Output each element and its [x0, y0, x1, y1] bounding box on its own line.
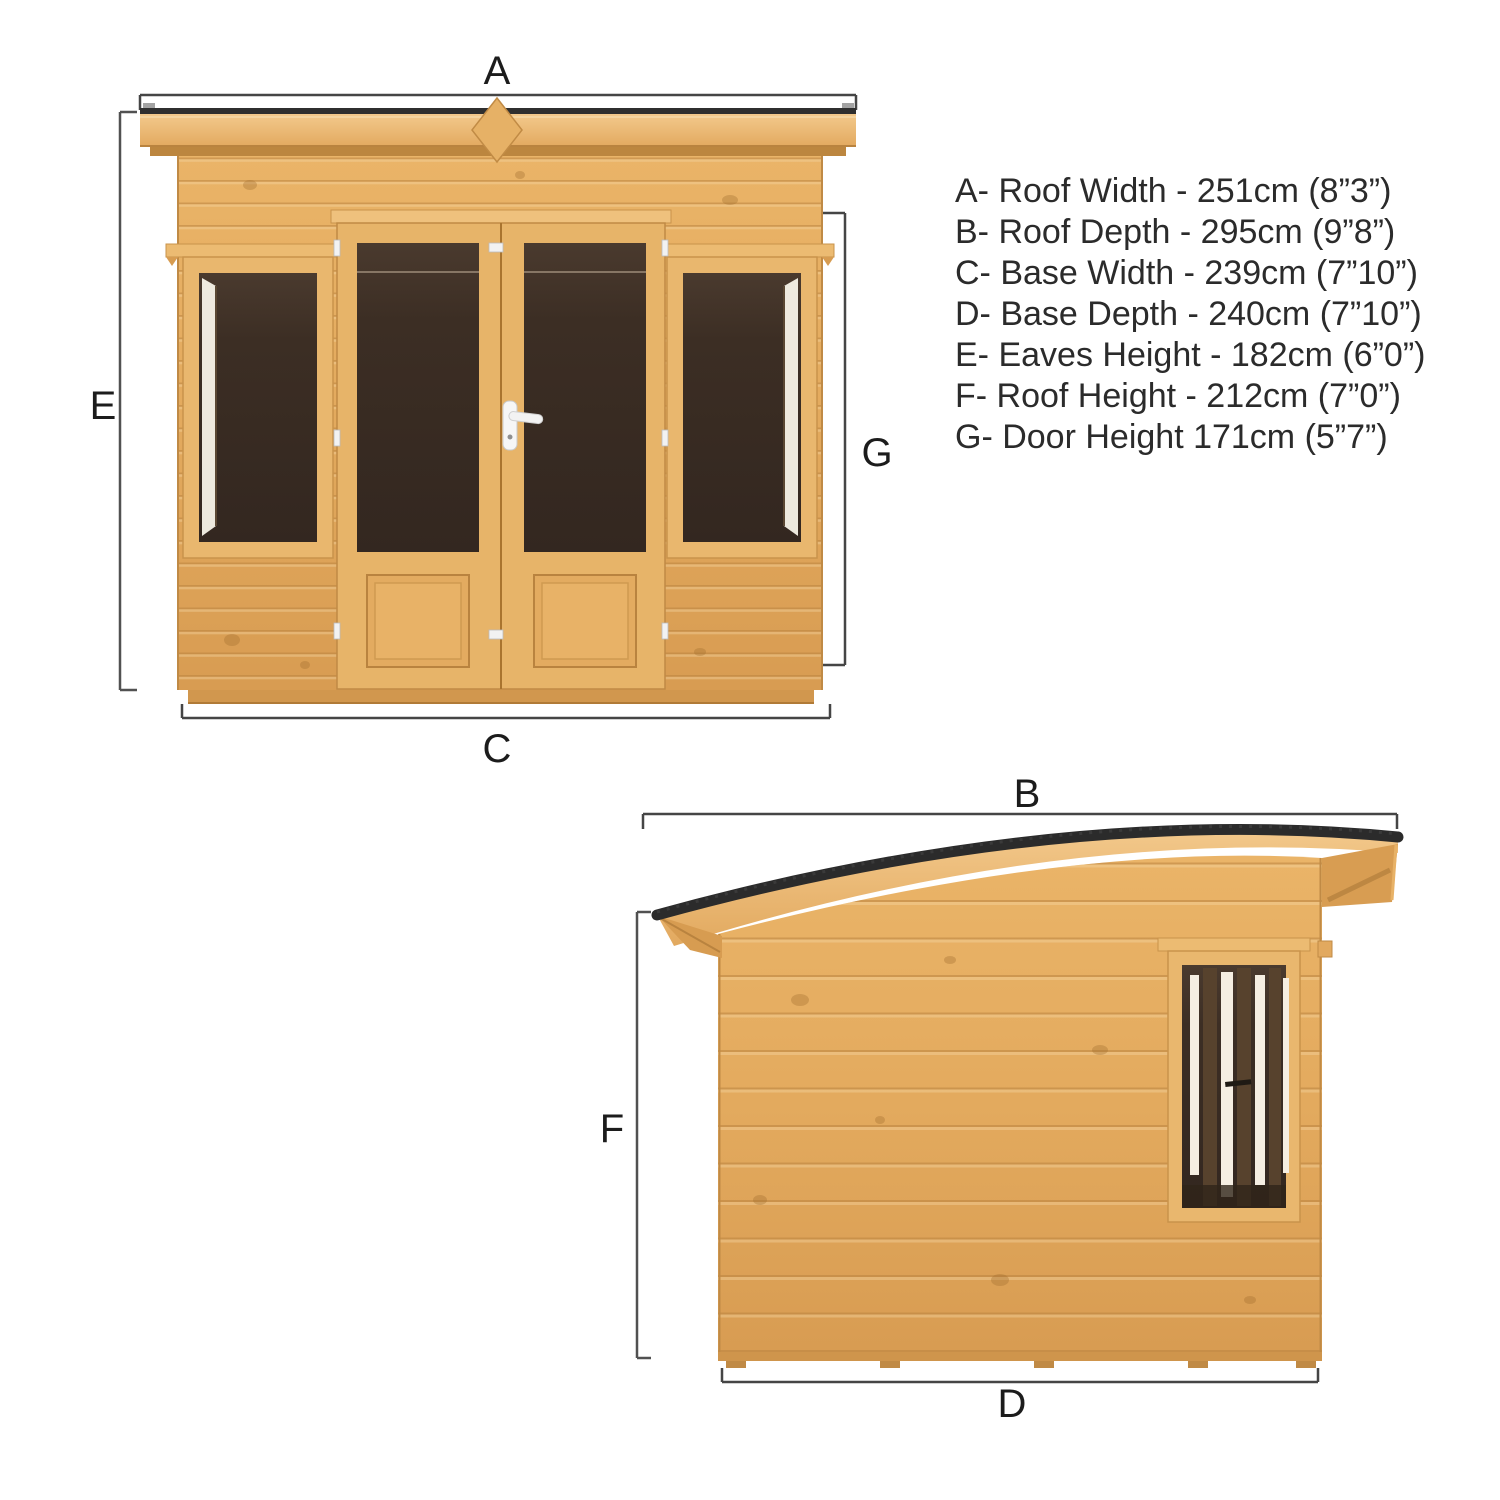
dim-label-e: E [90, 384, 117, 428]
spec-list: A- Roof Width - 251cm (8”3”) B- Roof Dep… [955, 171, 1426, 458]
dimension-diagram: A E G C [0, 0, 1500, 1500]
dim-label-c: C [483, 727, 512, 771]
side-window [1158, 938, 1310, 1222]
left-window [166, 244, 338, 558]
dim-label-g: G [861, 431, 892, 475]
dim-line-base-width [182, 704, 830, 718]
front-view: A E G C [90, 49, 893, 771]
dim-line-roof-height [637, 912, 651, 1358]
dim-line-base-depth [722, 1368, 1318, 1382]
dim-line-eaves-height [120, 112, 137, 690]
left-window-open-casement [202, 278, 216, 536]
door-lintel [331, 210, 671, 223]
right-door-glazing [524, 243, 646, 552]
spec-line-door-height: G- Door Height 171cm (5”7”) [955, 417, 1426, 458]
spec-line-roof-height: F- Roof Height - 212cm (7”0”) [955, 376, 1426, 417]
dim-label-a: A [484, 49, 511, 93]
front-base [188, 690, 814, 703]
dim-label-b: B [1014, 772, 1041, 816]
spec-line-base-width: C- Base Width - 239cm (7”10”) [955, 253, 1426, 294]
side-base [718, 1352, 1322, 1368]
side-view: B F D [600, 772, 1398, 1426]
spec-line-roof-width: A- Roof Width - 251cm (8”3”) [955, 171, 1426, 212]
double-doors [331, 210, 671, 689]
right-window [662, 244, 834, 558]
right-window-open-casement [784, 278, 798, 536]
spec-line-eaves-height: E- Eaves Height - 182cm (6”0”) [955, 335, 1426, 376]
base-bearers [726, 1361, 1316, 1368]
left-door-glazing [357, 243, 479, 552]
interior-glazing-bars [1190, 968, 1289, 1206]
dim-label-f: F [600, 1107, 624, 1151]
dim-label-d: D [998, 1382, 1027, 1426]
spec-line-roof-depth: B- Roof Depth - 295cm (9”8”) [955, 212, 1426, 253]
spec-line-base-depth: D- Base Depth - 240cm (7”10”) [955, 294, 1426, 335]
side-trim-tab [1318, 941, 1332, 957]
front-roof [140, 98, 856, 162]
